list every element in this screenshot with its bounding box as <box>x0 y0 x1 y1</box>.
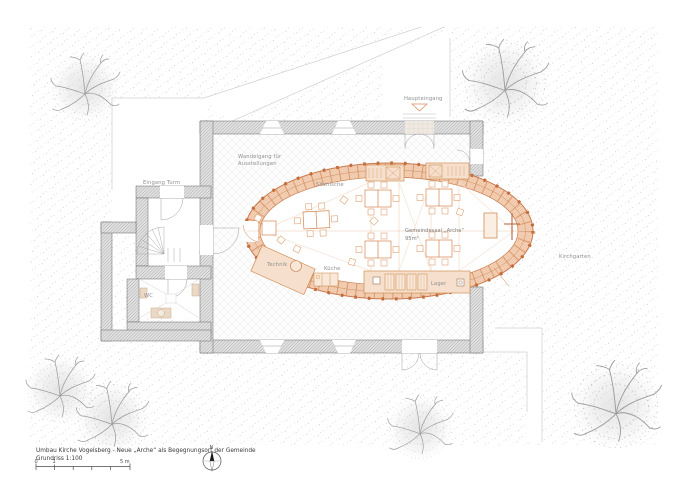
label-area: 95m² <box>405 236 419 242</box>
scale-tick-5m: 5 m <box>120 459 130 465</box>
pod-top-right <box>426 163 469 179</box>
drawing-title: Umbau Kirche Vogelsberg - Neue „Arche“ a… <box>36 448 256 454</box>
tower-door-opening <box>160 186 184 198</box>
east-wall-upper <box>470 121 483 176</box>
label-eingang-turm: Eingang Turm <box>143 180 180 186</box>
east-wall-lower <box>470 287 483 353</box>
scale-tick-1: 1 <box>53 459 56 465</box>
pod-top-left <box>366 165 404 181</box>
technik-tank <box>291 261 302 272</box>
label-technik: Technik <box>266 262 287 268</box>
title-block: Umbau Kirche Vogelsberg - Neue „Arche“ a… <box>36 448 256 462</box>
altar-table <box>484 213 497 238</box>
label-sitznische: Sitznische <box>316 182 344 188</box>
label-gemeindesaal: Gemeindesaal „Arche“ <box>405 228 465 234</box>
tower-floor <box>148 198 199 266</box>
arche-ellipse-structure <box>241 163 533 299</box>
label-wc: WC <box>144 293 153 299</box>
annex-west-wall <box>101 222 112 341</box>
label-lager: Lager <box>431 281 447 287</box>
label-kueche: Küche <box>324 266 341 272</box>
south-door-opening <box>402 340 437 353</box>
wc-west-wall <box>127 279 139 322</box>
label-wandelgang-2: Ausstellungen <box>238 161 277 167</box>
label-wandelgang-1: Wandelgang für <box>238 154 282 160</box>
ellipse-west-door <box>241 221 258 242</box>
tower-west-wall <box>136 198 148 266</box>
label-kirchgarten: Kirchgarten <box>559 254 591 260</box>
kitchen-counter <box>314 273 338 286</box>
east-path <box>495 328 542 352</box>
floor-plan-canvas: Wandelgang für Ausstellungen Eingang Tur… <box>0 0 678 480</box>
north-label: N <box>210 445 213 451</box>
label-haupteingang: Haupteingang <box>404 96 442 102</box>
floor-plan-drawing: Wandelgang für Ausstellungen Eingang Tur… <box>0 0 678 480</box>
main-entrance-threshold <box>405 121 434 134</box>
drawing-subtitle: Grundriss 1:100 <box>36 456 83 462</box>
tower-entry-court <box>112 98 206 190</box>
